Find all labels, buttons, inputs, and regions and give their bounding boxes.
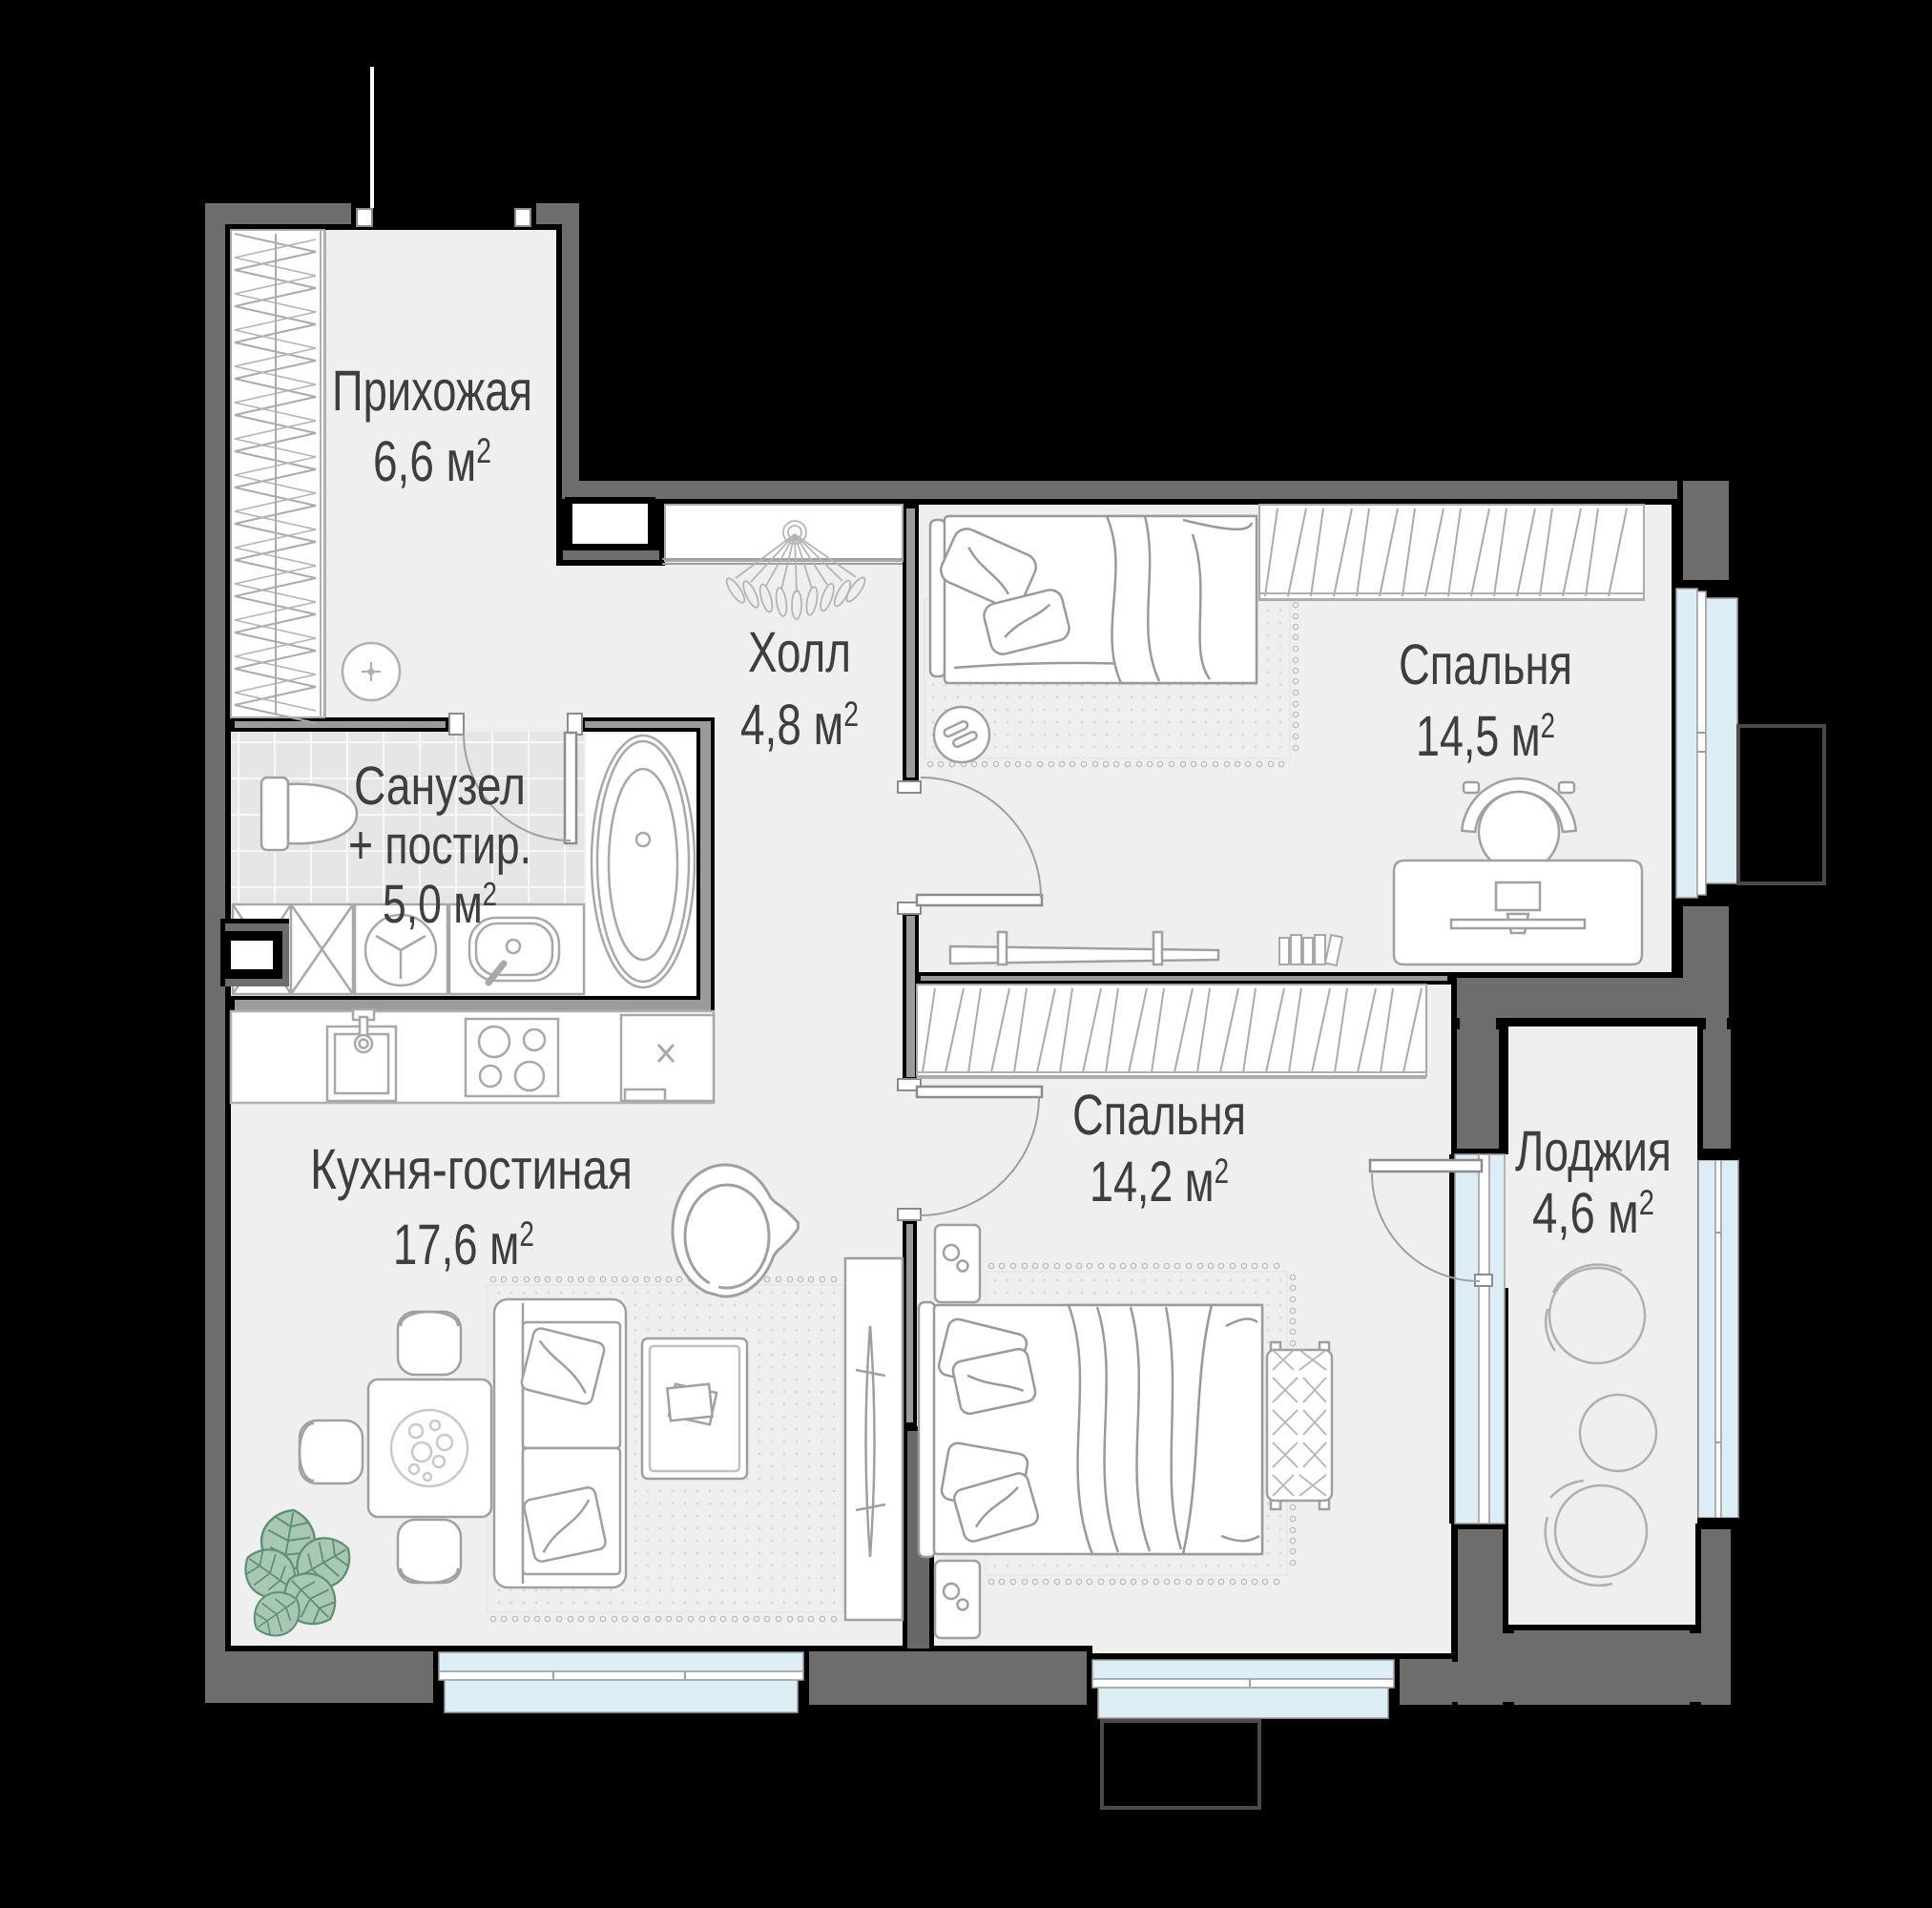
svg-text:Лоджия: Лоджия	[1515, 1119, 1672, 1183]
svg-text:Прихожая: Прихожая	[332, 359, 532, 423]
svg-text:14,5 м2: 14,5 м2	[1416, 704, 1555, 768]
svg-text:4,8 м2: 4,8 м2	[740, 693, 859, 757]
svg-text:Холл: Холл	[748, 620, 851, 684]
svg-text:6,6 м2: 6,6 м2	[373, 429, 491, 493]
svg-text:+ постир.: + постир.	[348, 815, 531, 876]
svg-text:14,2 м2: 14,2 м2	[1090, 1150, 1229, 1213]
svg-text:5,0 м2: 5,0 м2	[383, 874, 497, 935]
svg-text:17,6 м2: 17,6 м2	[393, 1213, 534, 1276]
svg-text:Спальня: Спальня	[1399, 633, 1572, 696]
svg-text:Кухня-гостиная: Кухня-гостиная	[310, 1137, 633, 1201]
svg-text:4,6 м2: 4,6 м2	[1532, 1181, 1654, 1245]
svg-text:Спальня: Спальня	[1072, 1083, 1246, 1147]
svg-text:Санузел: Санузел	[354, 756, 526, 817]
